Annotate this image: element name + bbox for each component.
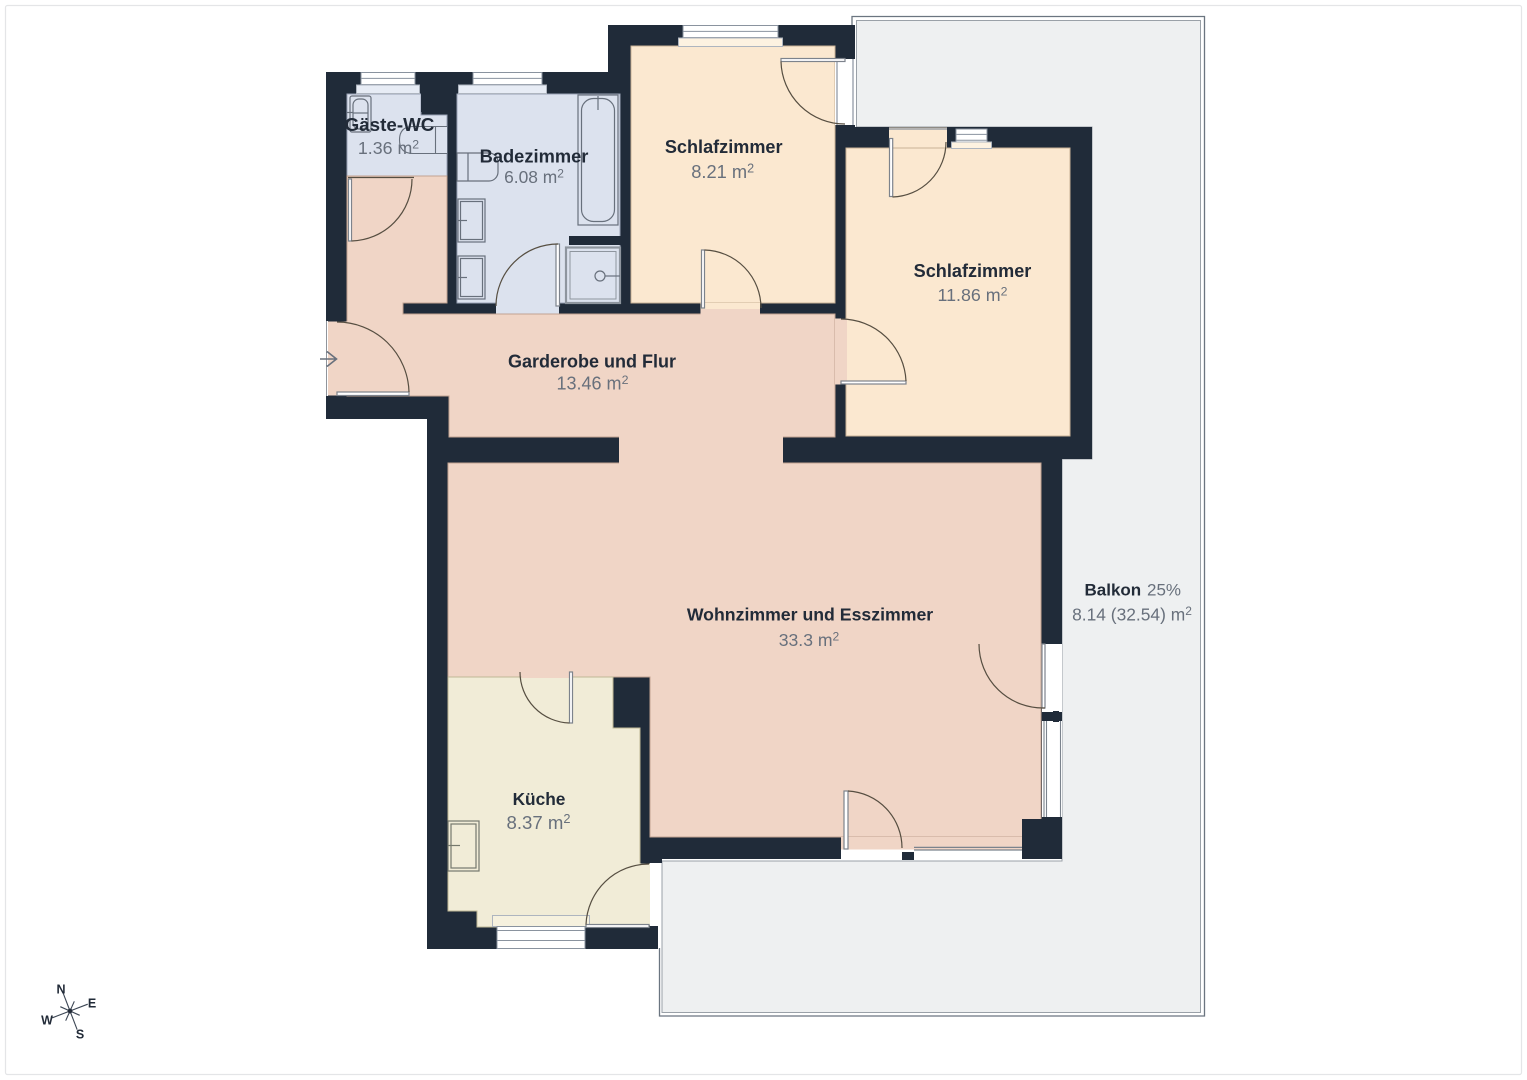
- svg-text:25%: 25%: [1147, 581, 1181, 600]
- svg-text:Küche: Küche: [513, 789, 566, 809]
- svg-text:Schlafzimmer: Schlafzimmer: [914, 261, 1032, 281]
- svg-text:13.46 m2: 13.46 m2: [557, 373, 629, 394]
- svg-text:8.21 m2: 8.21 m2: [691, 161, 754, 182]
- svg-text:33.3 m2: 33.3 m2: [779, 629, 840, 650]
- svg-text:Wohnzimmer und Esszimmer: Wohnzimmer und Esszimmer: [687, 604, 933, 624]
- svg-text:E: E: [88, 997, 96, 1011]
- svg-text:Balkon: Balkon: [1085, 581, 1142, 600]
- svg-text:S: S: [76, 1028, 84, 1042]
- svg-text:Gäste-WC: Gäste-WC: [345, 114, 435, 135]
- svg-text:N: N: [56, 983, 65, 997]
- svg-text:W: W: [41, 1014, 53, 1028]
- svg-text:6.08 m2: 6.08 m2: [504, 166, 564, 187]
- svg-text:8.37 m2: 8.37 m2: [507, 811, 571, 833]
- svg-text:Schlafzimmer: Schlafzimmer: [665, 137, 783, 157]
- svg-text:11.86 m2: 11.86 m2: [938, 285, 1008, 306]
- svg-text:8.14 (32.54) m2: 8.14 (32.54) m2: [1072, 604, 1192, 624]
- svg-text:1.36 m2: 1.36 m2: [358, 138, 419, 159]
- svg-text:Garderobe und Flur: Garderobe und Flur: [508, 352, 676, 372]
- svg-text:Badezimmer: Badezimmer: [480, 146, 589, 167]
